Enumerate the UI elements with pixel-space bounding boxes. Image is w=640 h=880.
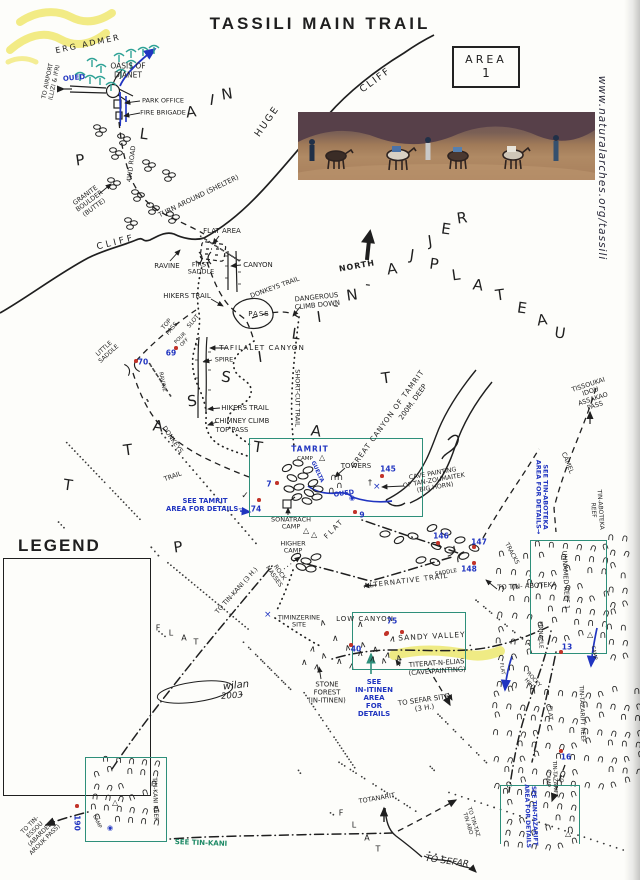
svg-text:∩: ∩	[620, 712, 628, 723]
timinzerine-label: TIMINZERINE SITE	[278, 615, 320, 630]
svg-text:∩: ∩	[619, 570, 626, 581]
photo-trail-caravan	[298, 112, 595, 180]
svg-text:∧: ∧	[308, 644, 316, 655]
spire-label: SPIRE	[215, 356, 234, 363]
big-letter: N	[220, 84, 234, 103]
flat-area-label: FLAT AREA	[203, 227, 241, 235]
svg-text:∩: ∩	[596, 753, 606, 765]
svg-text:∩: ∩	[634, 700, 640, 713]
svg-text:∩: ∩	[557, 714, 567, 726]
arch-number-7: 7	[266, 480, 271, 489]
svg-text:∩: ∩	[491, 726, 500, 738]
area-box-word: AREA	[465, 53, 507, 66]
low-canyon-label: LOW CANYON	[336, 615, 394, 623]
pinnacle-label: PINNACLE	[536, 621, 543, 648]
svg-text:∩: ∩	[509, 566, 518, 578]
arch-number-9: 9	[359, 511, 364, 520]
svg-text:∩: ∩	[522, 551, 530, 562]
arch-number-145: 145	[380, 465, 396, 474]
svg-text:△: △	[311, 530, 318, 539]
svg-text:∩: ∩	[620, 585, 629, 597]
camp-v1-label: CAMP	[589, 645, 597, 660]
svg-text:∩: ∩	[543, 687, 551, 698]
svg-text:∩: ∩	[543, 740, 552, 752]
red-dot	[436, 541, 440, 545]
svg-text:∩: ∩	[607, 584, 615, 596]
arch-number-13: 13	[562, 643, 572, 652]
red-dot	[353, 510, 357, 514]
flat-v2-label: FLAT	[497, 663, 505, 676]
svg-text:∩: ∩	[621, 738, 629, 749]
svg-text:∩: ∩	[608, 778, 619, 791]
red-dot	[384, 632, 388, 636]
flat-m-t-label: T	[194, 637, 199, 646]
oasis-of-djanet-label: OASIS OF DJANET	[110, 62, 145, 79]
svg-text:∧: ∧	[332, 634, 339, 644]
arch-number-70: 70	[138, 358, 148, 367]
flat-b-a-label: A	[364, 833, 369, 842]
area-1-box: AREA 1	[452, 46, 520, 88]
svg-text:∧: ∧	[301, 658, 308, 668]
arch-number-190: 190	[73, 815, 82, 831]
svg-text:∩: ∩	[621, 753, 631, 766]
svg-text:∩: ∩	[636, 748, 640, 760]
svg-text:∩: ∩	[596, 780, 606, 793]
svg-text:∩: ∩	[517, 753, 528, 766]
photo-art	[298, 112, 595, 180]
svg-text:∩: ∩	[582, 752, 591, 764]
svg-text:∩: ∩	[568, 725, 576, 736]
arch-number-69: 69	[166, 349, 176, 358]
svg-text:∩: ∩	[516, 738, 523, 749]
svg-text:∧: ∧	[320, 651, 328, 662]
svg-text:∩: ∩	[635, 727, 640, 740]
svg-text:∩: ∩	[623, 774, 633, 786]
fire-brigade-label: FIRE BRIGADE	[140, 109, 186, 116]
red-dot	[380, 474, 384, 478]
top-pass-2-label: TOP PASS	[216, 427, 249, 435]
arch-number-16: 16	[561, 753, 571, 762]
map-title: TASSILI MAIN TRAIL	[0, 14, 640, 34]
svg-text:∩: ∩	[634, 766, 640, 778]
svg-text:×: ×	[264, 610, 272, 620]
svg-text:∩: ∩	[515, 711, 523, 723]
tamrit-area-box	[249, 438, 423, 517]
svg-text:∩: ∩	[492, 708, 502, 721]
red-dot	[134, 359, 138, 363]
short-cut-trail-label: SHORT-CUT TRAIL	[293, 369, 300, 426]
ravine-1-label: RAVINE	[154, 262, 179, 270]
tin-aboteka-reef-label: TIN-ABOTEKA REEF	[588, 488, 605, 533]
to-tin-taz-branch	[398, 800, 456, 831]
tafilalet-canyon-label: TAFILALET CANYON	[219, 344, 305, 352]
flat-b-l-label: L	[352, 820, 356, 829]
svg-text:∩: ∩	[620, 622, 628, 633]
arch-number-148: 148	[461, 565, 477, 574]
see-tin-tazarift-label: SEE TIN-TAZARIFT AREA FOR DETAILS	[522, 784, 538, 848]
svg-text:∩: ∩	[530, 766, 539, 778]
svg-text:∩: ∩	[621, 548, 632, 561]
north-arrow	[361, 228, 376, 260]
pass-1-label: PASS	[248, 310, 269, 318]
chimney-climb-label: CHIMNEY CLIMB	[215, 418, 269, 426]
red-dot	[559, 650, 563, 654]
higher-camp-label: HIGHER CAMP	[280, 541, 305, 556]
svg-text:∩: ∩	[503, 764, 511, 775]
red-dot	[275, 481, 279, 485]
svg-text:∩: ∩	[507, 662, 515, 673]
tin-kani-reef-label: TIN-KANI REEF	[150, 777, 158, 821]
red-dot	[75, 804, 79, 808]
svg-text:∩: ∩	[620, 533, 629, 545]
sonatrach-camp-label: SONATRACH CAMP	[271, 517, 311, 532]
svg-text:∩: ∩	[530, 712, 538, 723]
flat-m-f-label: F	[156, 623, 161, 632]
svg-text:∩: ∩	[620, 650, 631, 663]
handwritten-url-note: www.naturalarches.org/tassili	[596, 76, 608, 261]
svg-text:∧: ∧	[336, 657, 343, 667]
tin-tazarift-box	[500, 785, 580, 844]
stone-forest-label: STONE FOREST (IN-ITINEN)	[308, 681, 345, 704]
to-tazarift-camp-label: TO TIN-TAZARIFT CAMP	[544, 760, 564, 797]
arch-number-146: 146	[433, 532, 449, 541]
svg-text:∩: ∩	[495, 566, 503, 577]
red-dot	[174, 346, 178, 350]
svg-text:∩: ∩	[509, 636, 517, 648]
svg-text:∩: ∩	[545, 722, 555, 734]
flat-m-l-label: L	[169, 628, 173, 637]
svg-text:∩: ∩	[620, 597, 631, 610]
svg-text:∩: ∩	[595, 727, 604, 739]
svg-text:∩: ∩	[610, 683, 620, 695]
svg-text:∩: ∩	[570, 766, 580, 779]
flat-m-a-label: A	[181, 633, 186, 642]
svg-text:∩: ∩	[510, 610, 520, 623]
red-dot	[472, 545, 476, 549]
signature-year-label: 2003	[221, 691, 243, 702]
svg-text:∩: ∩	[508, 593, 516, 604]
red-dot	[349, 643, 353, 647]
red-dot	[257, 498, 261, 502]
hikers-trail-1-label: HIKERS TRAIL	[163, 292, 210, 300]
svg-text:∩: ∩	[492, 753, 502, 765]
svg-text:∩: ∩	[607, 764, 614, 775]
first-saddle-label: FIRST SADDLE	[188, 262, 214, 277]
svg-text:∩: ∩	[608, 605, 618, 618]
svg-text:∩: ∩	[608, 701, 617, 713]
canyon-1-label: CANYON	[243, 261, 273, 269]
svg-text:∩: ∩	[494, 635, 501, 646]
tin-tazarift-reef-label: TIN-TAZARIFT REEF	[577, 685, 586, 742]
flat-b-f-label: F	[339, 808, 344, 817]
svg-text:∩: ∩	[504, 701, 513, 713]
tamrit-label: TAMRIT	[291, 446, 328, 455]
svg-text:∩: ∩	[556, 687, 565, 699]
svg-text:∩: ∩	[606, 737, 614, 749]
svg-text:∩: ∩	[607, 636, 616, 648]
see-in-itinen-label: SEE IN-ITINEN AREA FOR DETAILS	[355, 678, 393, 718]
arch-number-75: 75	[387, 617, 397, 626]
flat-v1-label: FLAT	[545, 706, 553, 721]
svg-text:∩: ∩	[595, 688, 605, 701]
svg-text:∩: ∩	[532, 748, 542, 760]
svg-text:∩: ∩	[607, 532, 615, 544]
area-box-number: 1	[482, 66, 490, 80]
big-letter: N	[345, 285, 359, 304]
svg-text:∩: ∩	[634, 713, 640, 724]
scanned-trail-map-page: ∩∩∩∩ ∩∩∩∩∩∩∩∩∩∩∩∩∩∩∩∩∩∩∩∩∩∩∩∩∩∩∩∩∩∩∩∩∩∩∩…	[0, 0, 640, 880]
svg-text:∩: ∩	[583, 779, 593, 791]
park-office-label: PARK OFFICE	[142, 97, 184, 104]
legend-title: LEGEND	[18, 536, 101, 556]
red-dot	[559, 749, 563, 753]
flat-b-t-label: T	[376, 844, 381, 853]
svg-text:∩: ∩	[621, 637, 631, 649]
see-tin-aboteka-label: SEE TIN-ABOTEKA AREA FOR DETAILS→	[534, 460, 549, 535]
see-tamrit-label: SEE TAMRIT AREA FOR DETAILS→	[166, 498, 244, 514]
svg-text:∩: ∩	[608, 547, 618, 560]
svg-text:∩: ∩	[608, 651, 618, 664]
red-dot	[472, 561, 476, 565]
svg-text:∩: ∩	[505, 727, 515, 739]
svg-text:∩: ∩	[597, 709, 607, 721]
svg-text:∩: ∩	[608, 559, 618, 572]
towers-label: TOWERS	[341, 462, 371, 470]
hikers-trail-2-label: HIKERS TRAIL	[221, 404, 268, 412]
checkmark-label: ✓	[241, 491, 249, 501]
svg-text:∩: ∩	[633, 686, 640, 697]
arch-number-74: 74	[251, 505, 261, 514]
aboteka-up-trail	[483, 449, 539, 538]
red-dot	[400, 630, 404, 634]
